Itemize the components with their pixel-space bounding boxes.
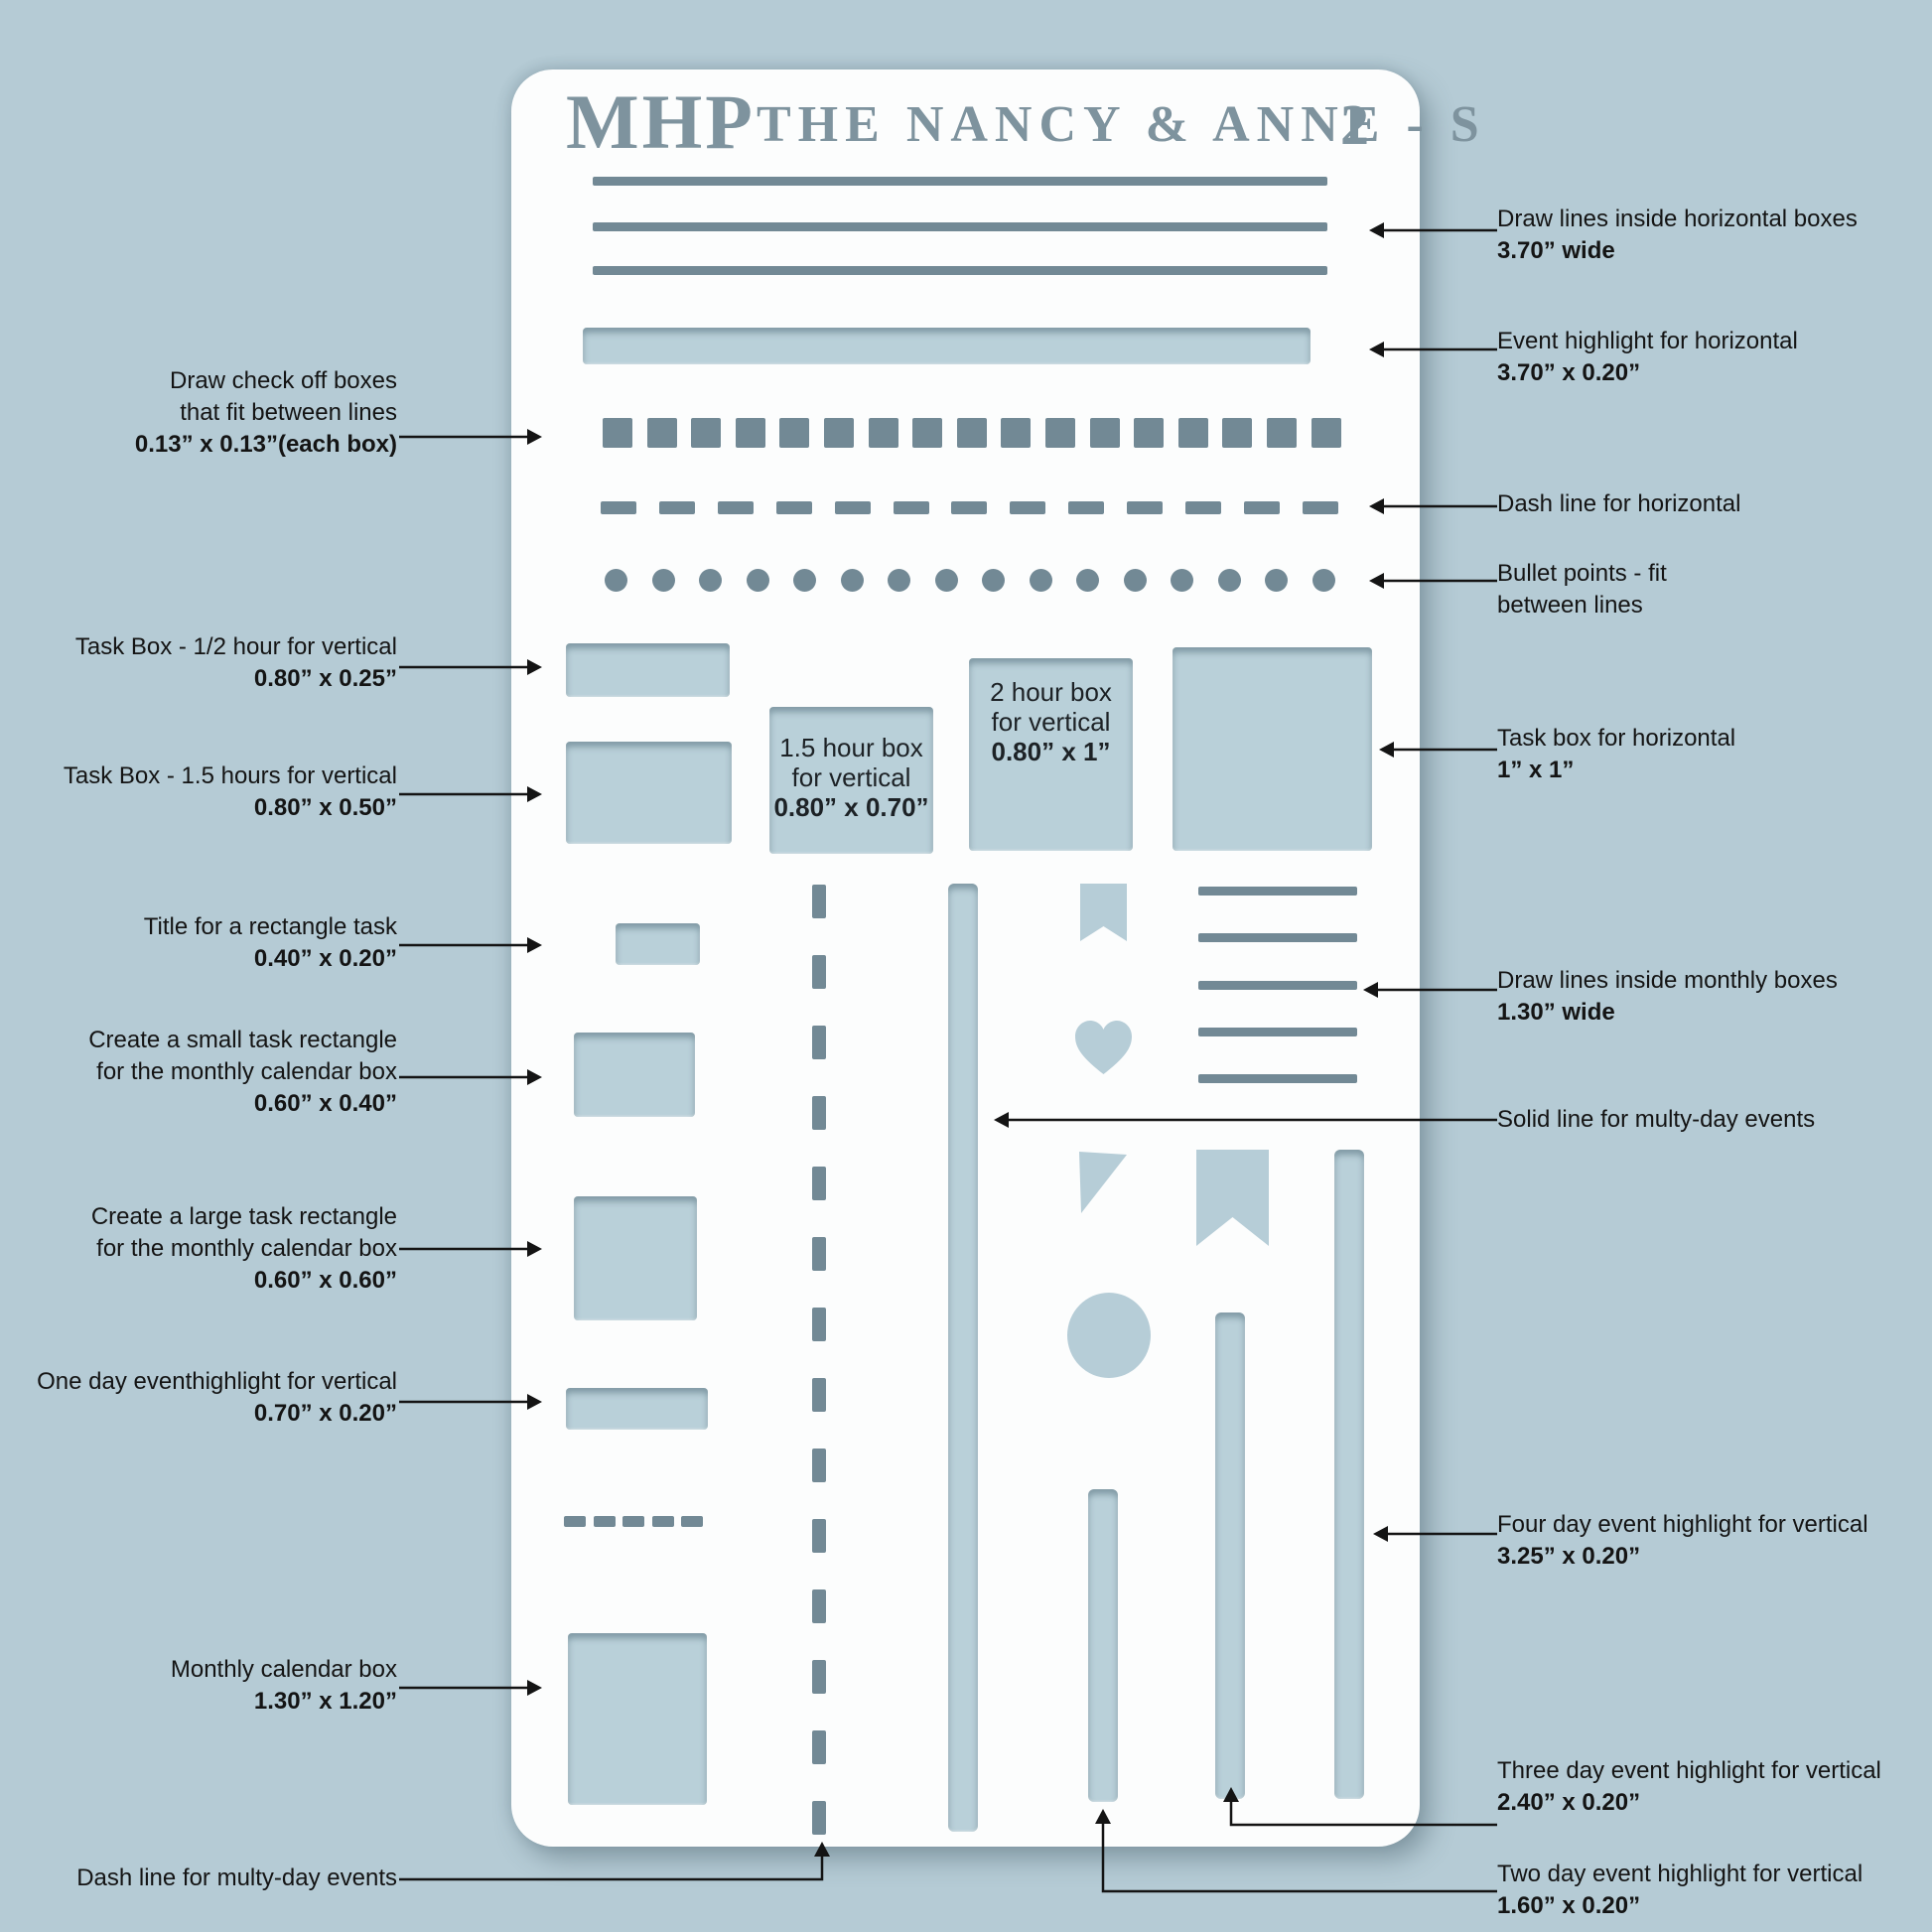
one-day-highlight-cutout	[566, 1388, 708, 1430]
bullet-dot-slot	[1312, 569, 1335, 592]
box-label-line: 1.5 hour box	[769, 733, 933, 762]
vertical-dash-slot	[812, 1589, 826, 1623]
monthly-line-slot	[1198, 1028, 1357, 1036]
small-dash-slot	[652, 1516, 674, 1527]
task-box-half-hour-cutout	[566, 643, 730, 697]
box-label-line: 2 hour box	[969, 677, 1133, 707]
two-day-highlight-cutout	[1088, 1489, 1118, 1802]
check-box-slot	[1045, 418, 1075, 448]
check-box-slot	[869, 418, 898, 448]
dash-slot	[1068, 501, 1104, 514]
vertical-dash-slot	[812, 955, 826, 989]
check-box-slot	[1001, 418, 1031, 448]
box-label-line: for vertical	[769, 762, 933, 792]
vertical-dash-slot	[812, 1308, 826, 1341]
check-box-slot	[691, 418, 721, 448]
box-1-5-hour-label: 1.5 hour box for vertical 0.80” x 0.70”	[769, 733, 933, 822]
bullet-dot-slot	[699, 569, 722, 592]
task-box-1-5-hour-cutout	[566, 742, 732, 844]
vertical-dash-slot	[812, 1096, 826, 1130]
vertical-dash-slot	[812, 1801, 826, 1835]
vertical-dash-slot	[812, 885, 826, 918]
monthly-line-slot	[1198, 981, 1357, 990]
stencil-cutouts: 1.5 hour box for vertical 0.80” x 0.70” …	[0, 0, 1932, 1932]
horizontal-line-slot	[593, 177, 1327, 186]
small-dash-slot	[622, 1516, 644, 1527]
dash-slot	[1185, 501, 1221, 514]
vertical-dash-slot	[812, 1237, 826, 1271]
dash-slot	[951, 501, 987, 514]
check-box-slot	[957, 418, 987, 448]
check-box-slot	[912, 418, 942, 448]
title-rectangle-cutout	[616, 923, 700, 965]
check-box-slot	[779, 418, 809, 448]
bullet-dot-slot	[1265, 569, 1288, 592]
heart-icon	[1075, 1021, 1132, 1074]
bullet-dot-slot	[1030, 569, 1052, 592]
check-box-slot	[1134, 418, 1164, 448]
bullet-dot-slot	[747, 569, 769, 592]
bullet-dot-slot	[1218, 569, 1241, 592]
dash-slot	[776, 501, 812, 514]
dash-slot	[718, 501, 754, 514]
bullet-dot-slot	[841, 569, 864, 592]
small-dash-slot	[681, 1516, 703, 1527]
vertical-dash-slot	[812, 1519, 826, 1553]
monthly-line-slot	[1198, 1074, 1357, 1083]
dash-slot	[601, 501, 636, 514]
four-day-highlight-cutout	[1334, 1150, 1364, 1799]
event-highlight-horizontal-cutout	[583, 328, 1311, 364]
dash-slot	[835, 501, 871, 514]
check-box-slot	[603, 418, 632, 448]
small-dash-slot	[594, 1516, 616, 1527]
dash-slot	[894, 501, 929, 514]
large-task-rectangle-cutout	[574, 1196, 697, 1320]
dash-slot	[1010, 501, 1045, 514]
three-day-highlight-cutout	[1215, 1312, 1245, 1799]
bullet-dot-slot	[888, 569, 910, 592]
bullet-dot-slot	[1076, 569, 1099, 592]
task-box-1x1-cutout	[1173, 647, 1372, 851]
vertical-dash-slot	[812, 1378, 826, 1412]
dash-slot	[659, 501, 695, 514]
box-label-dims: 0.80” x 1”	[969, 737, 1133, 766]
dash-slot	[1303, 501, 1338, 514]
bullet-dot-slot	[982, 569, 1005, 592]
product-diagram: MHP THE NANCY & ANNE - S 2 1.5 hour box …	[0, 0, 1932, 1932]
solid-line-multiday-cutout	[948, 884, 978, 1832]
vertical-dash-slot	[812, 1026, 826, 1059]
bullet-dot-slot	[793, 569, 816, 592]
vertical-dash-slot	[812, 1730, 826, 1764]
check-box-slot	[1178, 418, 1208, 448]
check-box-slot	[1267, 418, 1297, 448]
box-label-dims: 0.80” x 0.70”	[769, 792, 933, 822]
check-box-slot	[824, 418, 854, 448]
horizontal-line-slot	[593, 266, 1327, 275]
small-dash-slot	[564, 1516, 586, 1527]
monthly-line-slot	[1198, 933, 1357, 942]
bookmark-icon	[1080, 884, 1127, 941]
dash-slot	[1127, 501, 1163, 514]
bullet-dot-slot	[1124, 569, 1147, 592]
check-box-slot	[736, 418, 765, 448]
vertical-dash-slot	[812, 1167, 826, 1200]
small-task-rectangle-cutout	[574, 1033, 695, 1117]
box-label-line: for vertical	[969, 707, 1133, 737]
box-2-hour-label: 2 hour box for vertical 0.80” x 1”	[969, 677, 1133, 766]
bullet-dot-slot	[605, 569, 627, 592]
vertical-dash-slot	[812, 1449, 826, 1482]
bullet-dot-slot	[1171, 569, 1193, 592]
check-box-slot	[1311, 418, 1341, 448]
dash-slot	[1244, 501, 1280, 514]
bullet-dot-slot	[935, 569, 958, 592]
circle-icon	[1067, 1293, 1151, 1378]
bullet-dot-slot	[652, 569, 675, 592]
check-box-slot	[1090, 418, 1120, 448]
monthly-line-slot	[1198, 887, 1357, 896]
check-box-slot	[1222, 418, 1252, 448]
monthly-calendar-box-cutout	[568, 1633, 707, 1805]
vertical-dash-slot	[812, 1660, 826, 1694]
ribbon-banner-icon	[1196, 1150, 1269, 1246]
horizontal-line-slot	[593, 222, 1327, 231]
flag-triangle-icon	[1079, 1152, 1127, 1213]
check-box-slot	[647, 418, 677, 448]
